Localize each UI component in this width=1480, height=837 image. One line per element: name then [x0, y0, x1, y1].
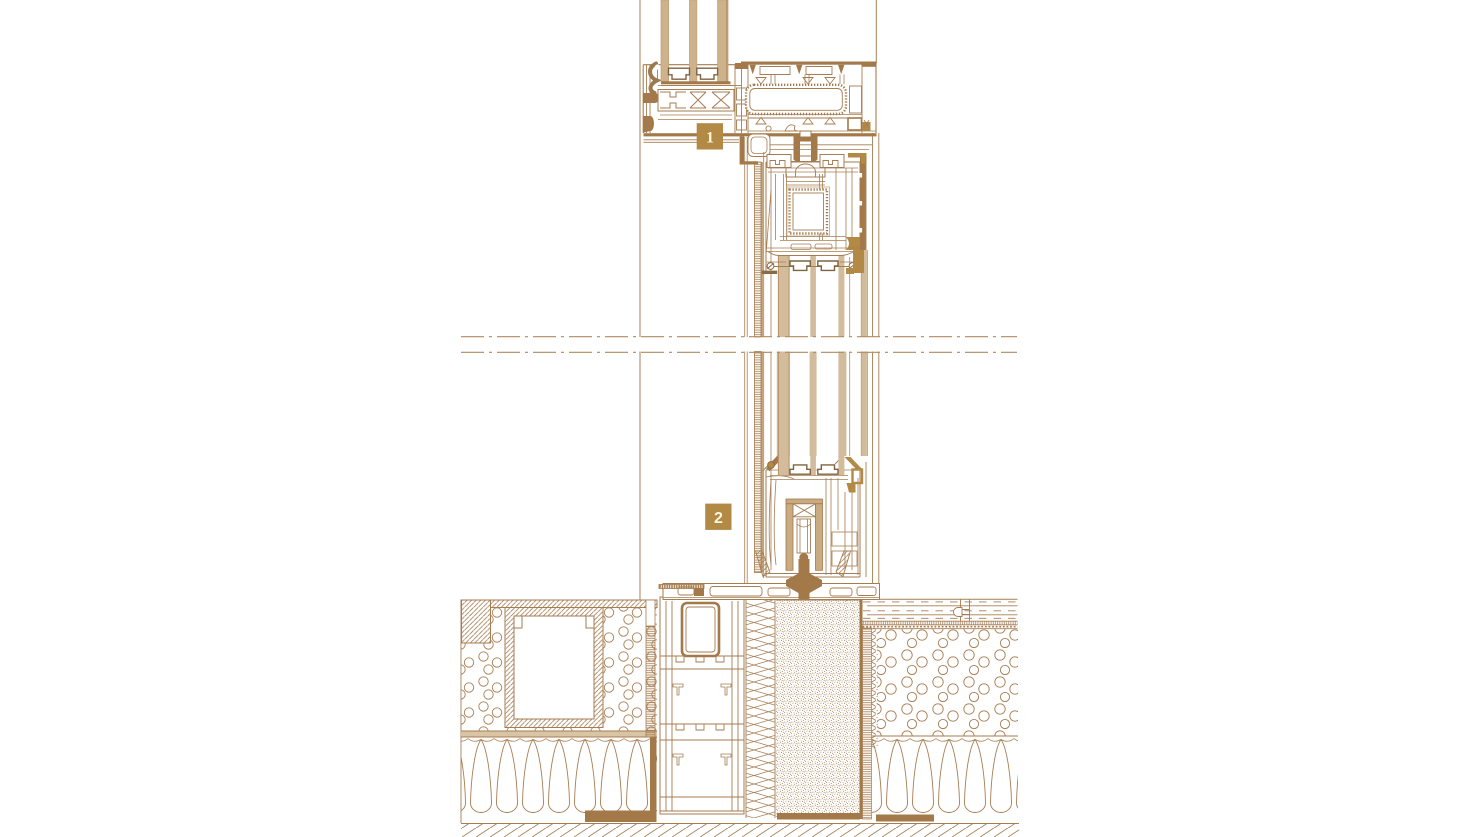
svg-text:1: 1	[706, 130, 714, 147]
svg-text:2: 2	[714, 510, 723, 527]
